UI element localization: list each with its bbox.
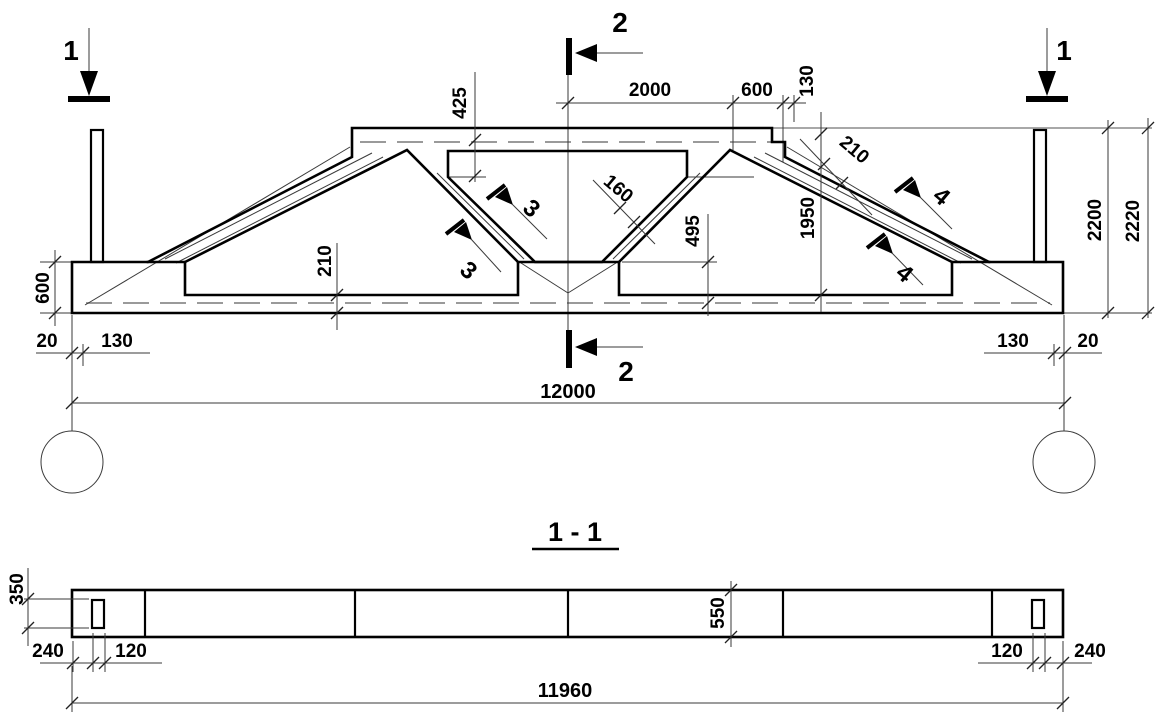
- section-arrow-down-icon: [1038, 71, 1056, 96]
- section-view-1-1: 1 - 1: [7, 517, 1106, 712]
- section-2-bottom-label: 2: [618, 356, 634, 387]
- dim-11960: 11960: [538, 680, 593, 702]
- grid-bubble-left: [41, 431, 103, 493]
- section-body: [72, 590, 1063, 637]
- dim-240-right: 240: [1074, 641, 1106, 662]
- dim-550: 550: [708, 597, 729, 629]
- right-post-slot: [1032, 600, 1044, 628]
- dim-210-chord: 210: [315, 245, 336, 277]
- dim-210-slope: 210: [835, 132, 873, 168]
- section-marker-2-bottom: 2: [566, 330, 643, 387]
- dim-2200: 2200: [1085, 199, 1106, 241]
- grid-bubble-right: [1033, 431, 1095, 493]
- dim-120-left: 120: [115, 641, 147, 662]
- dim-350: 350: [7, 573, 28, 605]
- section-marker-1-left: 1: [63, 28, 110, 102]
- dim-120-right: 120: [991, 641, 1023, 662]
- left-post-slot: [92, 600, 104, 628]
- dim-1950: 1950: [798, 197, 819, 239]
- dim-160: 160: [599, 171, 637, 207]
- section-marker-2-top: 2: [566, 7, 643, 75]
- dim-240-left: 240: [32, 641, 64, 662]
- dim-130-left: 130: [101, 331, 133, 352]
- truss-elevation: 1 1 2 2 3: [33, 7, 1154, 493]
- dim-130-right: 130: [997, 331, 1029, 352]
- section-marker-4-upper: 4: [895, 178, 956, 229]
- drawing-canvas: 1 1 2 2 3: [0, 0, 1161, 718]
- dim-600-top: 600: [741, 80, 773, 101]
- dim-20-left: 20: [36, 331, 57, 352]
- section-4-upper-label: 4: [928, 182, 956, 212]
- dim-20-right: 20: [1077, 331, 1098, 352]
- section-2-top-label: 2: [612, 7, 628, 38]
- right-post: [1034, 130, 1046, 262]
- dim-425: 425: [450, 87, 471, 119]
- section-3-upper-label: 3: [518, 194, 546, 223]
- section-1-right-label: 1: [1056, 35, 1072, 66]
- dim-2000: 2000: [629, 80, 671, 101]
- dim-130-top: 130: [797, 65, 818, 97]
- dimension-ticks: [49, 97, 1154, 409]
- section-marker-3-lower: 3: [446, 220, 501, 285]
- section-arrow-down-icon: [80, 71, 98, 96]
- left-post: [91, 130, 103, 262]
- dim-495: 495: [683, 215, 704, 247]
- truss-drawing-sheet: 1 1 2 2 3: [0, 0, 1161, 718]
- section-arrow-left-icon: [575, 338, 597, 356]
- dim-600-left: 600: [33, 272, 54, 304]
- section-4-lower-label: 4: [891, 259, 919, 289]
- dim-2220: 2220: [1123, 200, 1144, 242]
- section-view-title: 1 - 1: [548, 517, 602, 547]
- section-1-left-label: 1: [63, 35, 79, 66]
- section-marker-1-right: 1: [1026, 28, 1072, 102]
- section-arrow-left-icon: [575, 44, 597, 62]
- section-3-lower-label: 3: [455, 256, 483, 285]
- reinforcement-lines: [85, 75, 1052, 332]
- dim-12000: 12000: [540, 381, 596, 403]
